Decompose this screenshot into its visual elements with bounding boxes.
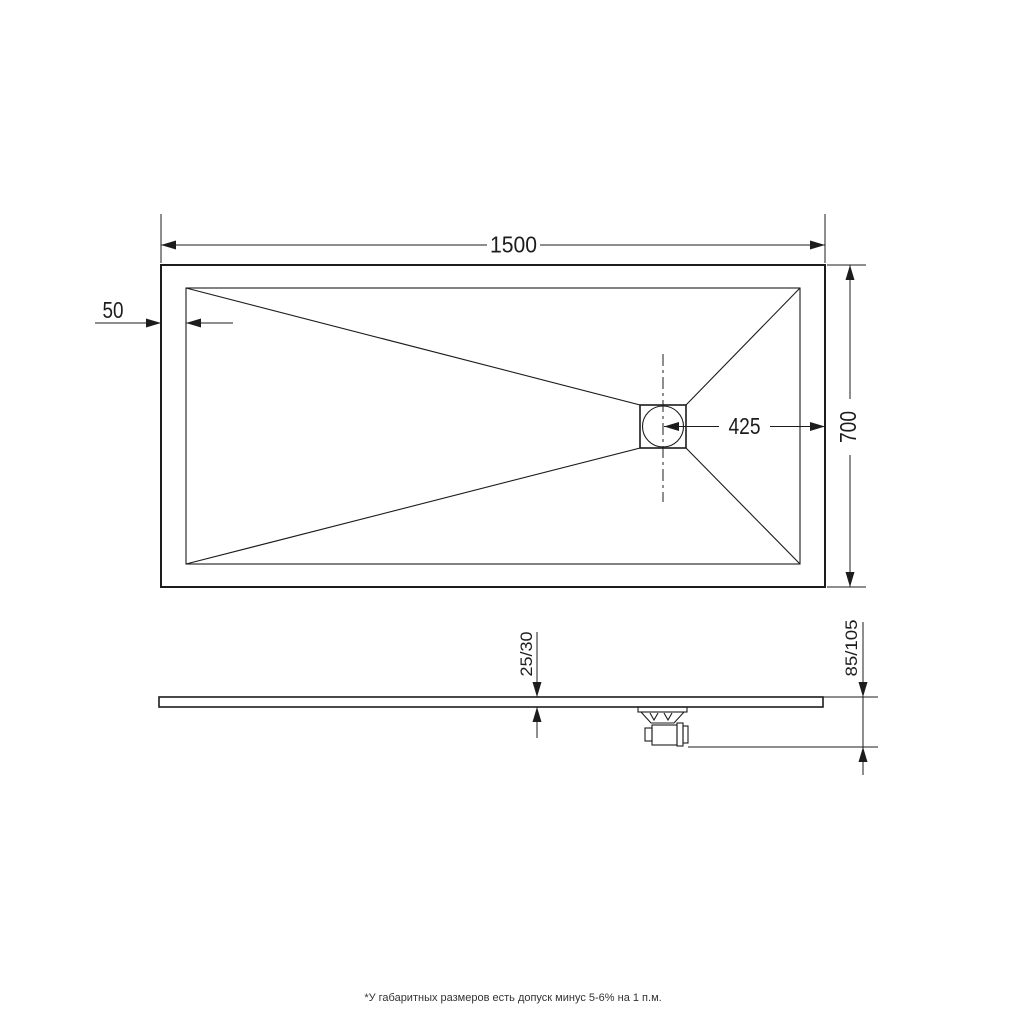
tray-section-slab bbox=[159, 697, 823, 707]
dim-thickness-arrow-bottom bbox=[533, 707, 542, 722]
siphon-left-nub bbox=[645, 728, 652, 741]
dim-drain-arrow-left bbox=[664, 422, 679, 431]
dim-thickness-arrow-top bbox=[533, 682, 542, 697]
dim-length-arrow-left bbox=[161, 241, 176, 250]
top-view bbox=[161, 265, 825, 587]
dim-border-label: 50 bbox=[103, 297, 124, 323]
dim-total-height-label: 85/105 bbox=[842, 620, 861, 677]
dim-border-arrow-left bbox=[146, 319, 161, 328]
tolerance-footnote: *У габаритных размеров есть допуск минус… bbox=[364, 992, 661, 1004]
siphon bbox=[638, 707, 688, 746]
dim-width: 700 bbox=[827, 265, 866, 587]
drawing-canvas: 1500 50 425 700 bbox=[0, 0, 1028, 1028]
siphon-flange-ribs bbox=[650, 713, 672, 720]
dim-drain-arrow-right bbox=[810, 422, 825, 431]
siphon-flange-body bbox=[641, 712, 684, 723]
dim-length-label: 1500 bbox=[490, 232, 537, 258]
siphon-outlet-cap bbox=[683, 726, 688, 743]
dim-border-arrow-right bbox=[186, 319, 201, 328]
slope-line-top-right bbox=[686, 288, 800, 405]
dim-length: 1500 bbox=[161, 214, 825, 263]
shower-tray-drawing: 1500 50 425 700 bbox=[0, 0, 1028, 1028]
dim-width-arrow-top bbox=[846, 265, 855, 280]
dim-length-arrow-right bbox=[810, 241, 825, 250]
dim-width-arrow-bottom bbox=[846, 572, 855, 587]
dim-total-height-arrow-bottom bbox=[859, 747, 868, 762]
dim-drain-offset-label: 425 bbox=[729, 413, 761, 439]
slope-line-bottom-right bbox=[686, 448, 800, 564]
dim-total-height-arrow-top bbox=[859, 682, 868, 697]
slope-line-top-left bbox=[186, 288, 640, 405]
dim-thickness: 25/30 bbox=[517, 632, 542, 739]
dim-drain-offset: 425 bbox=[664, 413, 825, 439]
tray-outer-edge bbox=[161, 265, 825, 587]
slope-line-bottom-left bbox=[186, 448, 640, 564]
dim-thickness-label: 25/30 bbox=[517, 632, 536, 677]
siphon-trap-body bbox=[652, 725, 677, 745]
dim-border: 50 bbox=[95, 297, 233, 328]
side-view bbox=[159, 697, 878, 747]
siphon-outlet-plate bbox=[677, 723, 683, 746]
dim-width-label: 700 bbox=[835, 411, 861, 443]
